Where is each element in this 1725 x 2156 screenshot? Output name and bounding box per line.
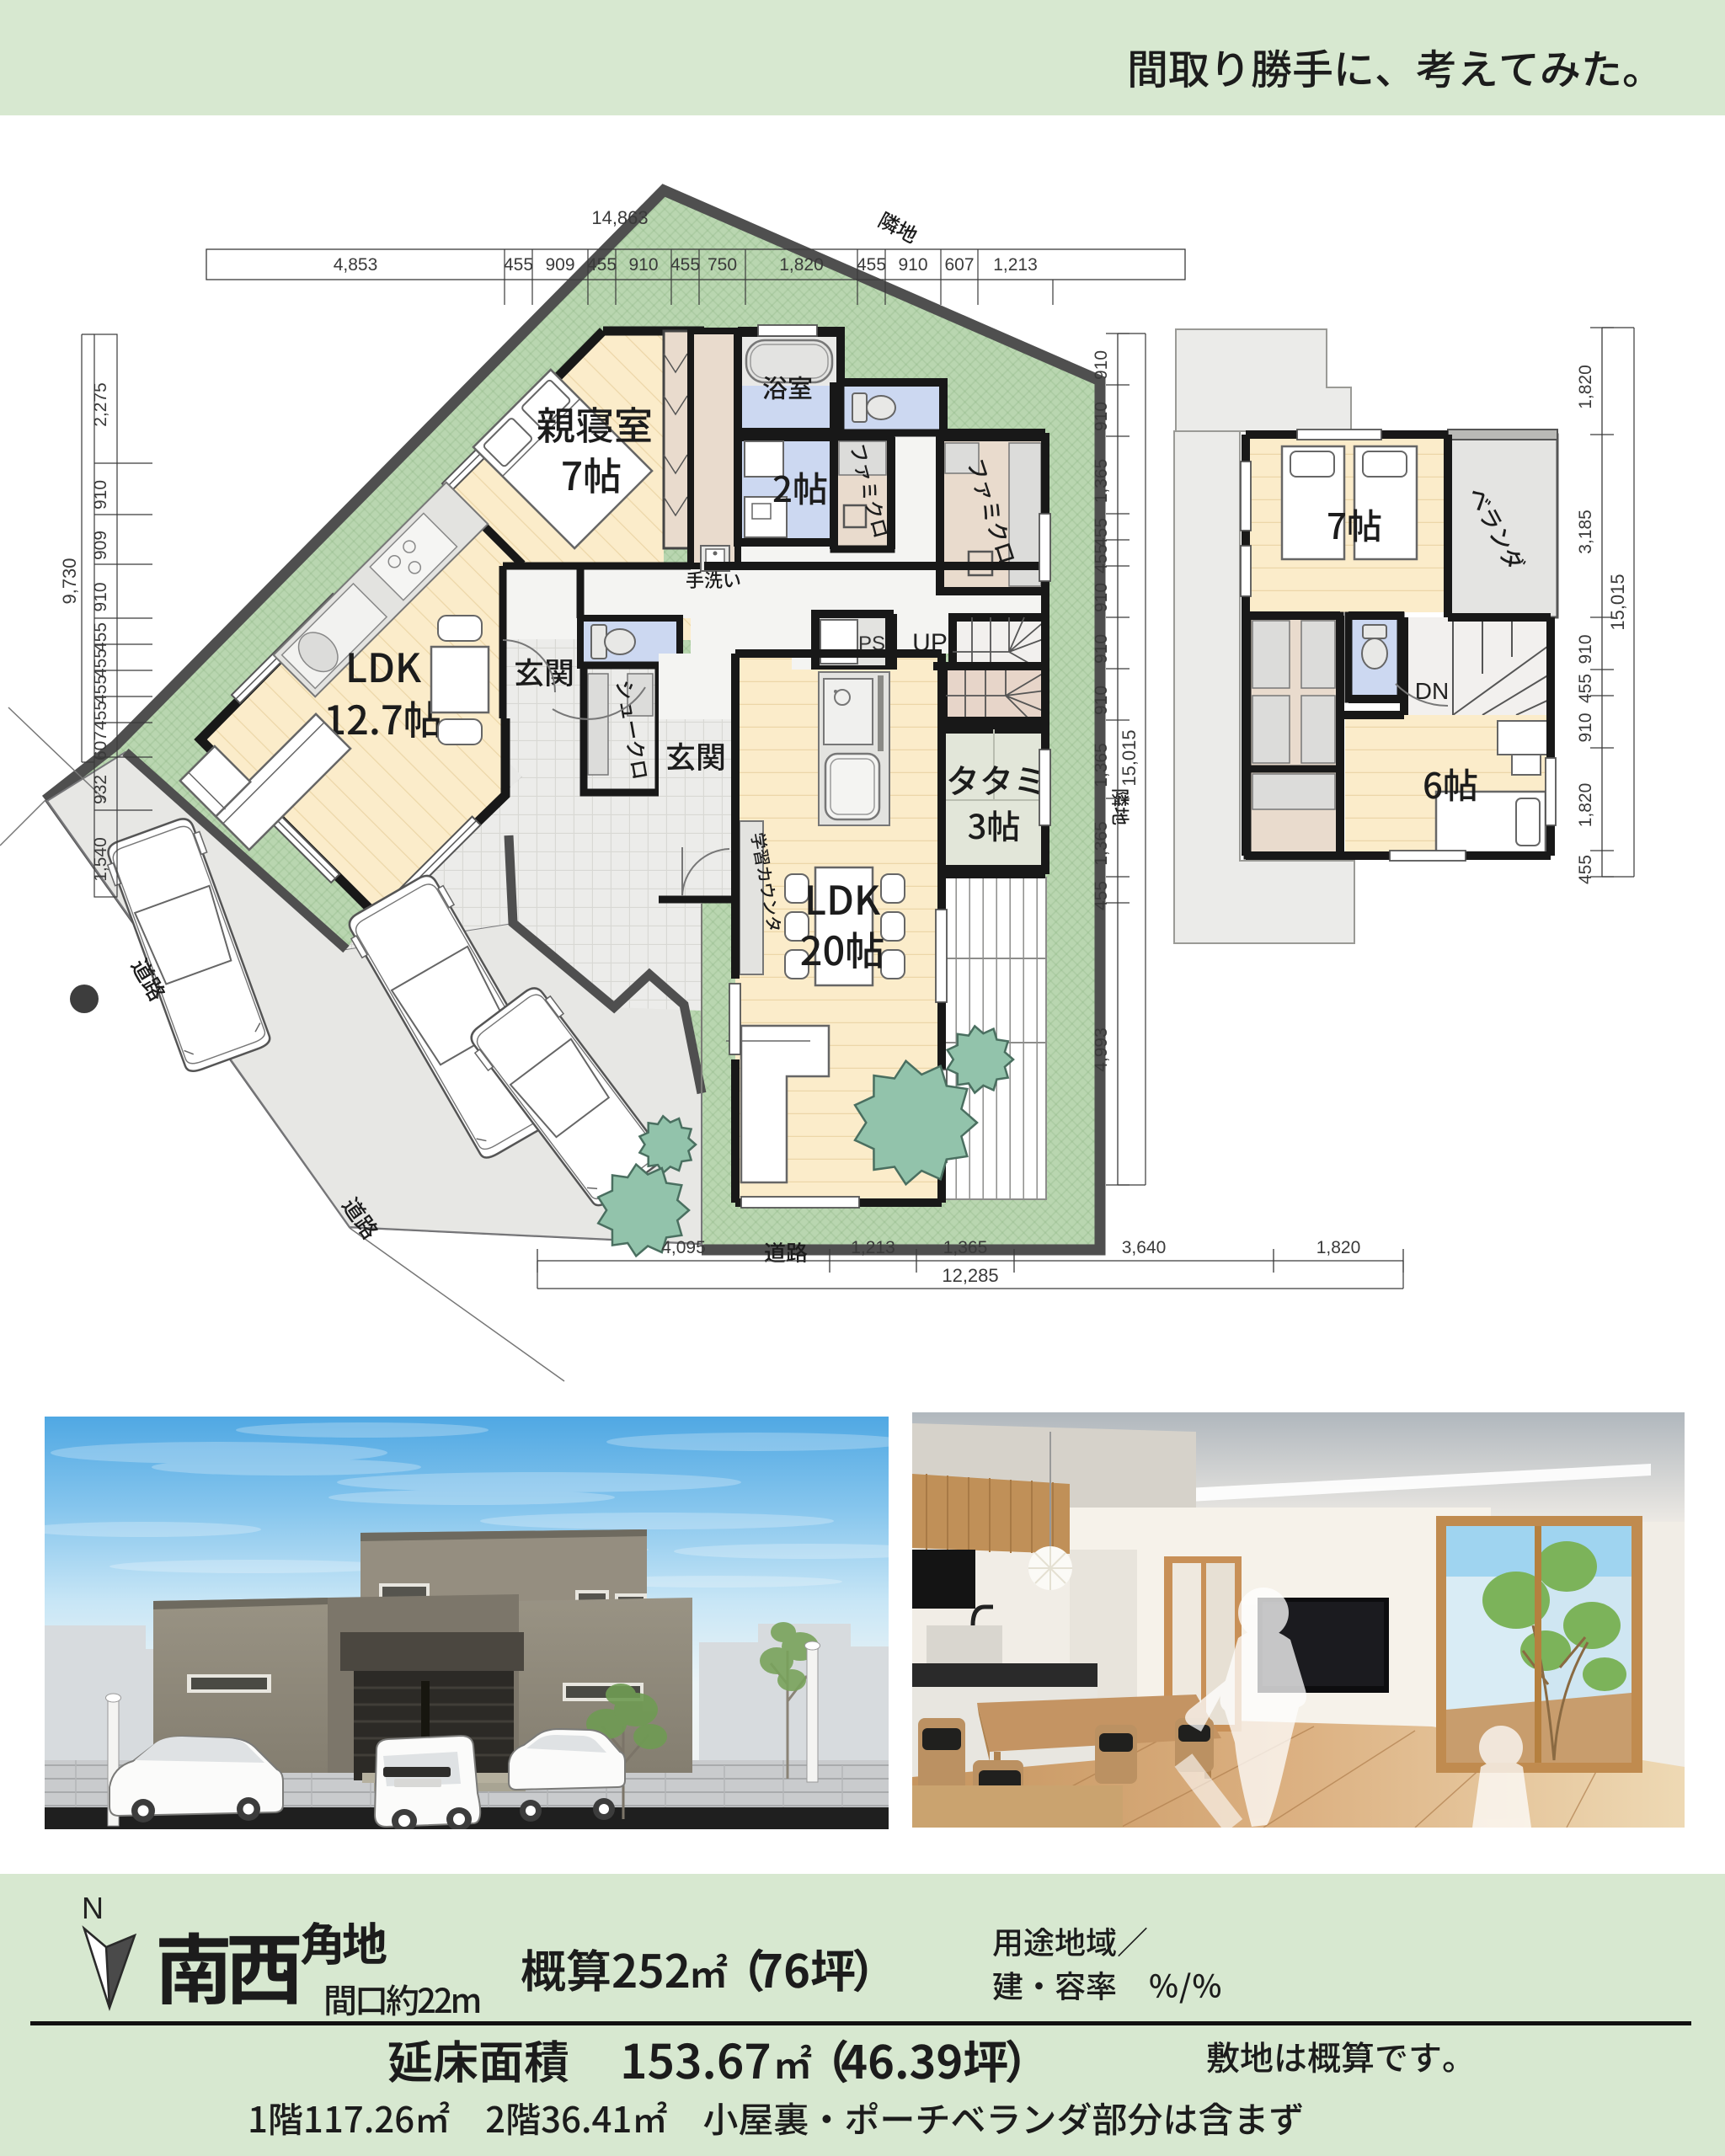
svg-text:910: 910 bbox=[91, 582, 110, 611]
svg-text:909: 909 bbox=[545, 255, 574, 275]
svg-text:910: 910 bbox=[91, 480, 110, 510]
svg-text:910: 910 bbox=[1092, 634, 1111, 664]
svg-text:12,285: 12,285 bbox=[942, 1265, 998, 1286]
svg-text:1,365: 1,365 bbox=[1092, 459, 1111, 504]
svg-text:1,365: 1,365 bbox=[1092, 821, 1111, 866]
svg-text:455: 455 bbox=[1092, 881, 1111, 910]
svg-text:1,820: 1,820 bbox=[1316, 1238, 1361, 1257]
svg-text:455: 455 bbox=[1092, 518, 1111, 547]
svg-text:1,540: 1,540 bbox=[91, 837, 110, 882]
svg-text:455: 455 bbox=[1576, 855, 1595, 884]
svg-text:607: 607 bbox=[944, 255, 974, 275]
svg-text:455: 455 bbox=[670, 255, 700, 275]
svg-text:N: N bbox=[82, 1891, 104, 1925]
svg-text:1,365: 1,365 bbox=[1092, 743, 1111, 787]
svg-text:910: 910 bbox=[1092, 583, 1111, 612]
svg-text:910: 910 bbox=[1092, 350, 1111, 380]
svg-text:455: 455 bbox=[91, 622, 110, 652]
svg-text:455: 455 bbox=[587, 255, 617, 275]
svg-text:455: 455 bbox=[504, 255, 533, 275]
svg-text:910: 910 bbox=[1092, 402, 1111, 431]
svg-text:910: 910 bbox=[1092, 686, 1111, 715]
svg-text:1,213: 1,213 bbox=[851, 1238, 895, 1257]
svg-text:750: 750 bbox=[708, 255, 737, 275]
svg-text:1,820: 1,820 bbox=[1576, 365, 1595, 409]
svg-text:14,863: 14,863 bbox=[591, 207, 648, 228]
svg-text:932: 932 bbox=[91, 775, 110, 804]
svg-text:3,185: 3,185 bbox=[1576, 510, 1595, 554]
svg-text:15,015: 15,015 bbox=[1119, 729, 1140, 786]
svg-text:607: 607 bbox=[91, 731, 110, 760]
svg-text:910: 910 bbox=[898, 255, 927, 275]
svg-text:455: 455 bbox=[857, 255, 886, 275]
svg-text:1,365: 1,365 bbox=[943, 1238, 988, 1257]
svg-text:4,853: 4,853 bbox=[334, 255, 378, 275]
svg-text:910: 910 bbox=[1576, 634, 1595, 664]
svg-text:455: 455 bbox=[1576, 674, 1595, 703]
svg-text:455: 455 bbox=[1092, 544, 1111, 574]
svg-text:1,820: 1,820 bbox=[779, 255, 824, 275]
svg-text:9,730: 9,730 bbox=[59, 558, 80, 604]
svg-text:15,015: 15,015 bbox=[1607, 574, 1628, 630]
svg-text:910: 910 bbox=[628, 255, 658, 275]
svg-text:455: 455 bbox=[91, 701, 110, 730]
svg-text:4,993: 4,993 bbox=[1092, 1027, 1111, 1072]
svg-text:1,213: 1,213 bbox=[993, 255, 1038, 275]
svg-text:909: 909 bbox=[91, 531, 110, 560]
svg-text:455: 455 bbox=[91, 675, 110, 704]
svg-text:3,640: 3,640 bbox=[1122, 1238, 1167, 1257]
svg-text:455: 455 bbox=[91, 648, 110, 678]
svg-text:2,275: 2,275 bbox=[91, 382, 110, 427]
svg-text:4,095: 4,095 bbox=[661, 1238, 706, 1257]
svg-text:1,820: 1,820 bbox=[1576, 783, 1595, 828]
svg-text:910: 910 bbox=[1576, 712, 1595, 742]
